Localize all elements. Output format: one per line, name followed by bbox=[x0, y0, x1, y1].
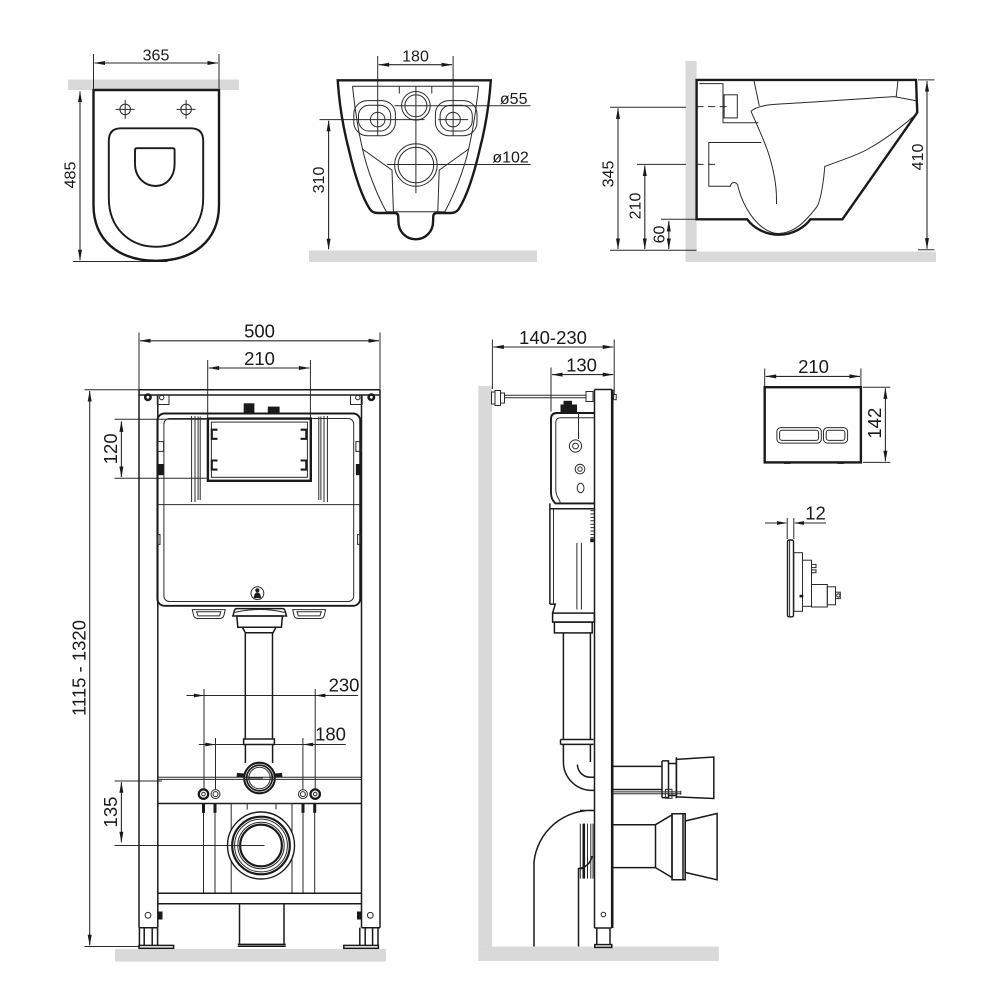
svg-text:210: 210 bbox=[798, 356, 829, 377]
svg-text:310: 310 bbox=[311, 167, 328, 194]
svg-text:365: 365 bbox=[143, 48, 170, 65]
svg-text:210: 210 bbox=[627, 193, 644, 220]
svg-text:210: 210 bbox=[244, 348, 275, 369]
svg-text:60: 60 bbox=[651, 226, 668, 244]
svg-text:142: 142 bbox=[864, 408, 885, 439]
svg-text:1115 - 1320: 1115 - 1320 bbox=[69, 620, 90, 716]
svg-text:345: 345 bbox=[601, 161, 618, 188]
svg-text:135: 135 bbox=[100, 797, 121, 828]
svg-text:140-230: 140-230 bbox=[519, 327, 587, 348]
svg-text:ø102: ø102 bbox=[492, 149, 529, 166]
svg-text:180: 180 bbox=[402, 49, 429, 66]
svg-text:410: 410 bbox=[910, 144, 927, 171]
svg-text:500: 500 bbox=[244, 321, 275, 342]
svg-text:130: 130 bbox=[566, 354, 597, 375]
svg-text:230: 230 bbox=[329, 675, 360, 696]
svg-text:120: 120 bbox=[100, 433, 121, 464]
svg-text:485: 485 bbox=[63, 162, 80, 189]
svg-text:180: 180 bbox=[315, 724, 346, 745]
svg-text:12: 12 bbox=[805, 503, 826, 524]
